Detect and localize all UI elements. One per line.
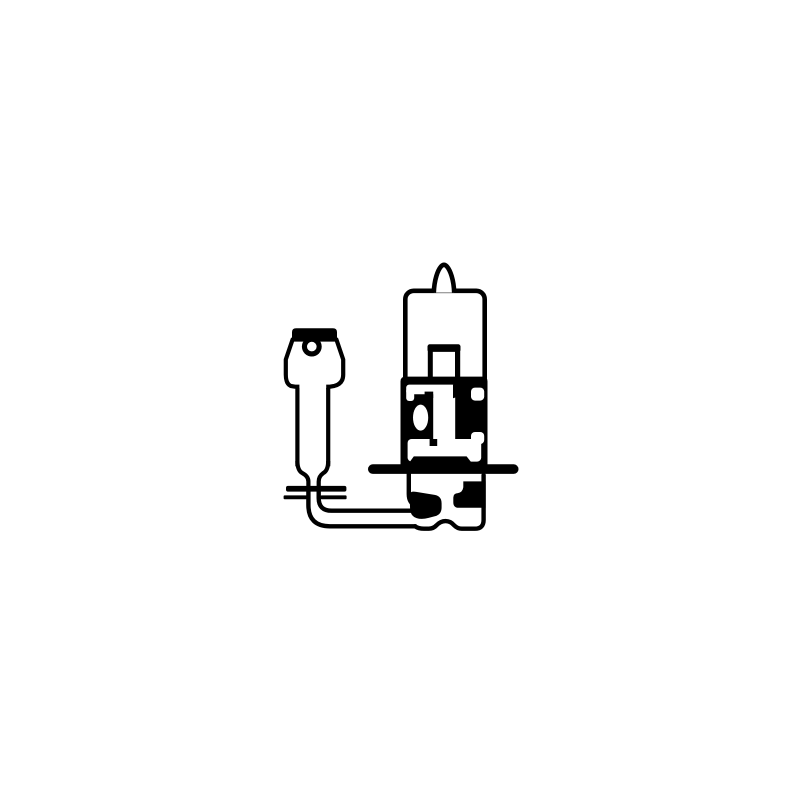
h3-bulb-illustration (0, 0, 800, 800)
base-cutout-notch-right-bottom (471, 432, 484, 444)
base-contact-pad-right (453, 481, 485, 507)
terminal-stub-left (284, 495, 310, 499)
bulb-envelope (405, 291, 484, 387)
shield-wall-left (428, 348, 433, 381)
shield-wall-right (455, 348, 460, 381)
base-contact-pad-left (410, 492, 442, 519)
base-lower (409, 473, 486, 529)
base-nub-top (425, 392, 434, 398)
terminal-grommet-bar (286, 486, 346, 492)
base-oval-window (413, 405, 428, 431)
bulb (368, 265, 519, 529)
spade-terminal (284, 328, 347, 499)
canvas (0, 0, 800, 800)
base-nub-bottom (430, 439, 438, 446)
base-cutout-notch-right-top (471, 388, 484, 401)
base-cutout-notch-left (406, 388, 414, 401)
terminal-hole (307, 342, 317, 352)
flange-bump (407, 456, 474, 466)
bulb-tip (434, 265, 454, 293)
terminal-stub-right (321, 495, 347, 499)
terminal-shaft-fill (299, 384, 326, 466)
base-cutout-stem (433, 388, 455, 443)
